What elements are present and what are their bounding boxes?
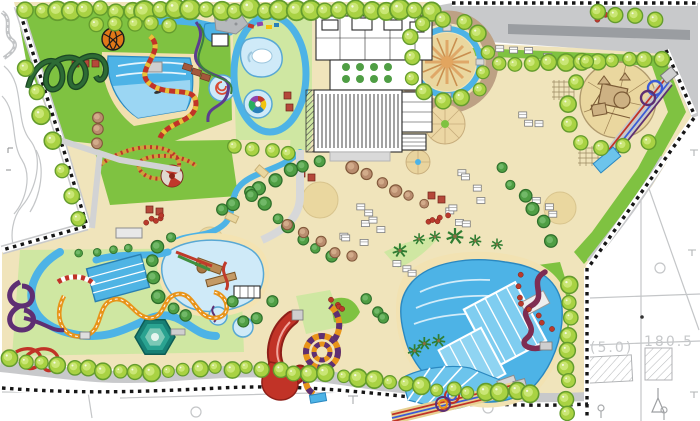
cabana — [357, 204, 365, 210]
tree-icon — [605, 54, 618, 67]
tree-icon — [477, 66, 490, 79]
dome-tower — [102, 28, 124, 50]
tree-icon — [346, 161, 359, 174]
tree-icon — [269, 174, 282, 187]
tree-icon — [347, 251, 357, 261]
tree-icon — [470, 25, 486, 41]
cabana — [525, 120, 533, 126]
tree-icon — [338, 370, 350, 382]
tree-icon — [654, 52, 669, 67]
tree-icon — [491, 383, 509, 401]
cabana — [461, 174, 469, 180]
tree-icon — [55, 164, 69, 178]
tree-icon — [564, 311, 578, 325]
flower-bed-icon — [328, 297, 333, 302]
survey-label-offset: (5.0) — [590, 340, 633, 356]
tree-icon — [162, 365, 174, 377]
masterplan-stage: 84.1 (5.0) 180.5 — [0, 0, 700, 421]
tree-icon — [405, 72, 418, 85]
tree-icon — [378, 313, 388, 323]
flower-bed-icon — [526, 307, 531, 312]
tree-icon — [628, 8, 643, 23]
service-building — [234, 286, 260, 298]
cabana — [535, 121, 543, 127]
kiosk — [496, 46, 504, 52]
tree-icon — [127, 365, 142, 380]
tree-icon — [284, 163, 297, 176]
cabana — [361, 221, 369, 227]
tree-icon — [1, 350, 17, 366]
tree-icon — [228, 140, 242, 154]
tree-icon — [317, 364, 334, 381]
tree-icon — [71, 212, 85, 226]
bush-icon — [110, 246, 118, 254]
tree-icon — [399, 377, 413, 391]
tree-icon — [180, 0, 200, 19]
tree-icon — [254, 362, 269, 377]
tree-icon — [519, 190, 531, 202]
cabana — [365, 210, 373, 216]
tree-icon — [314, 156, 325, 167]
tree-icon — [508, 58, 522, 72]
tree-icon — [316, 236, 326, 246]
flower-bed-icon — [518, 272, 523, 277]
flower-bed-icon — [516, 284, 521, 289]
tree-icon — [95, 363, 111, 379]
tree-icon — [193, 361, 209, 377]
tree-icon — [349, 369, 367, 387]
tree-icon — [407, 3, 422, 18]
tree-icon — [560, 406, 574, 420]
tree-icon — [64, 188, 79, 203]
cabana — [393, 261, 401, 267]
tree-icon — [405, 50, 420, 65]
tree-icon — [608, 8, 623, 23]
tree-icon — [497, 162, 507, 172]
tree-icon — [238, 316, 249, 327]
bush-icon — [75, 249, 83, 257]
tree-icon — [114, 365, 127, 378]
tree-icon — [331, 2, 347, 18]
tree-icon — [317, 3, 332, 18]
cabana — [342, 235, 350, 241]
tree-icon — [199, 2, 214, 17]
tree-icon — [403, 29, 418, 44]
tree-icon — [80, 360, 96, 376]
cabana — [473, 185, 481, 191]
tree-icon — [298, 227, 308, 237]
tree-icon — [416, 17, 430, 31]
tree-icon — [559, 343, 575, 359]
flower-bed-icon — [539, 320, 544, 325]
tree-icon — [416, 84, 432, 100]
tree-icon — [435, 93, 451, 109]
tree-icon — [526, 202, 539, 215]
tree-icon — [330, 248, 340, 258]
tree-icon — [297, 161, 308, 172]
tree-icon — [561, 276, 578, 293]
tree-icon — [560, 96, 576, 112]
tree-icon — [240, 361, 252, 373]
tree-icon — [266, 144, 280, 158]
flower-bed-icon — [153, 218, 158, 223]
tree-icon — [641, 135, 656, 150]
tree-icon — [506, 180, 515, 189]
tree-icon — [383, 376, 396, 389]
bush-icon — [93, 248, 101, 256]
flower-bed-icon — [437, 215, 442, 220]
cabana — [360, 239, 368, 245]
tree-icon — [147, 271, 160, 284]
tree-icon — [92, 138, 103, 149]
tree-icon — [413, 377, 430, 394]
cabana — [369, 217, 377, 223]
tree-icon — [346, 0, 364, 18]
tree-icon — [461, 387, 474, 400]
tree-icon — [562, 296, 576, 310]
tree-icon — [361, 294, 371, 304]
tree-icon — [44, 132, 61, 149]
cabana — [449, 205, 457, 211]
tree-icon — [366, 371, 383, 388]
cabana — [519, 112, 527, 118]
cabana — [462, 221, 470, 227]
tree-icon — [390, 185, 402, 197]
tree-icon — [435, 12, 450, 27]
tree-icon — [574, 136, 588, 150]
tree-icon — [17, 2, 33, 18]
tree-icon — [558, 360, 574, 376]
tree-icon — [286, 366, 301, 381]
flower-bed-icon — [518, 301, 523, 306]
cabana — [477, 198, 485, 204]
flower-bed-icon — [536, 313, 541, 318]
small-plaza — [406, 150, 430, 174]
tree-icon — [623, 52, 637, 66]
tree-icon — [473, 83, 486, 96]
tree-icon — [481, 46, 494, 59]
tree-icon — [93, 112, 104, 123]
tree-icon — [29, 84, 44, 99]
tree-icon — [361, 168, 372, 179]
existing-building-hatch — [587, 355, 632, 383]
kiosk — [212, 34, 228, 46]
tree-icon — [637, 52, 652, 67]
tree-icon — [453, 90, 469, 106]
tree-icon — [562, 117, 577, 132]
survey-label-length: 180.5 — [644, 334, 694, 350]
tree-icon — [35, 356, 48, 369]
tree-icon — [580, 55, 594, 69]
tree-icon — [251, 313, 262, 324]
tree-icon — [93, 1, 107, 15]
flower-bed-icon — [159, 213, 164, 218]
flower-bed-icon — [446, 213, 451, 218]
flower-bed-icon — [144, 220, 149, 225]
tree-icon — [457, 15, 472, 30]
tree-icon — [493, 57, 506, 70]
tree-icon — [431, 384, 443, 396]
tree-icon — [569, 75, 584, 90]
tree-icon — [19, 355, 33, 369]
tree-icon — [151, 240, 163, 252]
cabana — [377, 227, 385, 233]
tree-icon — [558, 392, 574, 408]
tree-icon — [217, 204, 228, 215]
tree-icon — [128, 17, 142, 31]
kiosk — [525, 48, 533, 54]
tree-icon — [301, 366, 318, 383]
tree-icon — [282, 220, 292, 230]
tree-icon — [176, 363, 189, 376]
flower-bed-icon — [549, 326, 554, 331]
tree-icon — [227, 198, 240, 211]
tree-icon — [144, 16, 158, 30]
tree-icon — [616, 139, 630, 153]
tree-icon — [143, 364, 161, 382]
tree-icon — [557, 54, 574, 71]
tree-icon — [49, 357, 65, 373]
tree-icon — [648, 12, 663, 27]
cabana — [408, 270, 416, 276]
tree-icon — [594, 141, 609, 156]
tree-icon — [562, 374, 576, 388]
existing-building-hatch — [645, 348, 672, 380]
tree-icon — [227, 296, 238, 307]
tree-icon — [89, 17, 103, 31]
tree-icon — [147, 255, 159, 267]
flower-bed-icon — [430, 217, 435, 222]
tree-icon — [224, 362, 240, 378]
tree-icon — [447, 382, 461, 396]
tree-icon — [545, 235, 558, 248]
tree-icon — [166, 233, 175, 242]
flower-bed-icon — [340, 306, 345, 311]
tree-icon — [521, 385, 538, 402]
tree-icon — [77, 2, 93, 18]
tree-icon — [152, 290, 165, 303]
cabana — [549, 211, 557, 217]
flower-bed-icon — [517, 295, 522, 300]
tree-icon — [168, 303, 179, 314]
tree-icon — [420, 199, 429, 208]
tree-icon — [377, 178, 387, 188]
tree-icon — [108, 17, 122, 31]
tree-icon — [18, 60, 34, 76]
tree-icon — [258, 197, 271, 210]
kiosk — [510, 47, 518, 53]
masterplan-map: 84.1 (5.0) 180.5 — [0, 0, 700, 421]
tree-icon — [180, 310, 191, 321]
tree-icon — [560, 328, 576, 344]
tree-icon — [240, 0, 260, 18]
tree-icon — [524, 56, 539, 71]
tree-icon — [281, 146, 295, 160]
tree-icon — [404, 191, 413, 200]
tree-icon — [32, 106, 50, 124]
cabana — [545, 204, 553, 210]
service-row — [116, 228, 142, 238]
tree-icon — [92, 124, 103, 135]
tree-icon — [245, 142, 259, 156]
bush-icon — [124, 244, 132, 252]
tree-icon — [273, 214, 283, 224]
tree-icon — [209, 361, 221, 373]
tree-icon — [246, 190, 258, 202]
tree-icon — [267, 296, 278, 307]
tree-icon — [538, 215, 550, 227]
tree-icon — [590, 4, 605, 19]
tree-icon — [162, 19, 176, 33]
tree-icon — [541, 54, 557, 70]
